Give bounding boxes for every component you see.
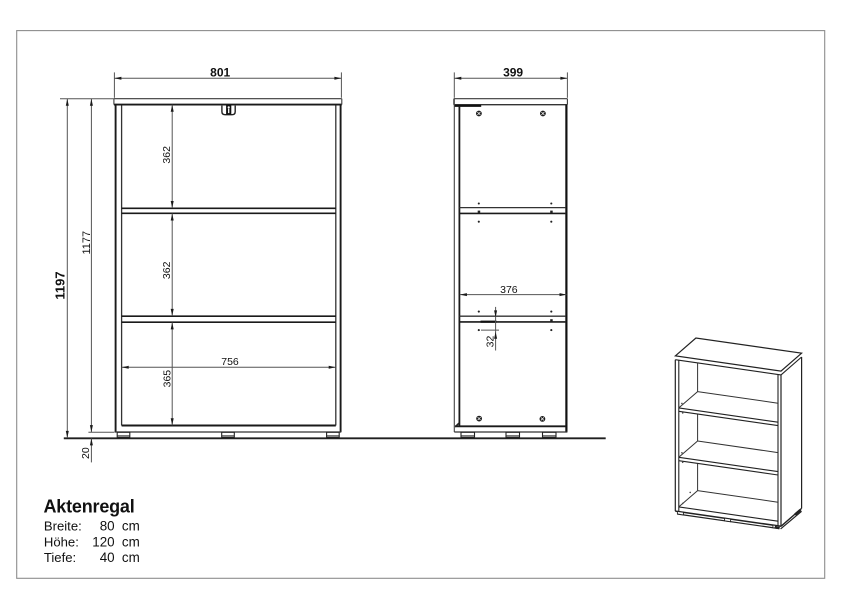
svg-text:cm: cm [122, 534, 140, 549]
svg-text:Breite:: Breite: [44, 519, 82, 534]
svg-text:365: 365 [162, 370, 174, 388]
svg-text:32: 32 [484, 336, 496, 348]
svg-text:Aktenregal: Aktenregal [44, 497, 135, 517]
svg-text:399: 399 [503, 66, 523, 80]
svg-text:756: 756 [221, 356, 239, 368]
svg-text:cm: cm [122, 519, 140, 534]
svg-text:20: 20 [80, 447, 92, 459]
svg-text:40: 40 [100, 550, 115, 565]
svg-text:362: 362 [161, 261, 173, 279]
svg-text:801: 801 [210, 65, 230, 79]
svg-text:80: 80 [100, 519, 115, 534]
svg-text:120: 120 [92, 534, 114, 549]
svg-text:cm: cm [122, 550, 140, 565]
svg-text:Tiefe:: Tiefe: [44, 550, 76, 565]
svg-text:1197: 1197 [53, 271, 68, 299]
svg-text:Höhe:: Höhe: [44, 534, 79, 549]
svg-text:362: 362 [161, 146, 173, 164]
svg-text:376: 376 [500, 284, 518, 296]
svg-text:1177: 1177 [81, 231, 93, 255]
